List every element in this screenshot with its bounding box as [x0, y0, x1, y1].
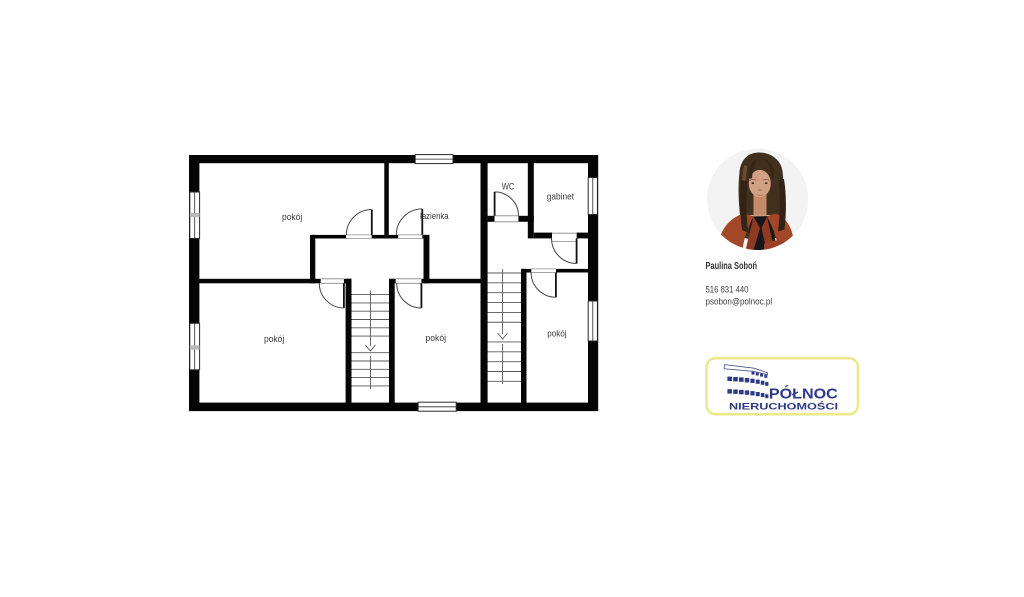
svg-text:gabinet: gabinet: [547, 192, 575, 202]
svg-text:Paulina Soboń: Paulina Soboń: [706, 261, 758, 272]
svg-text:psobon@polnoc.pl: psobon@polnoc.pl: [706, 297, 773, 307]
svg-text:NIERUCHOMOŚCI: NIERUCHOMOŚCI: [729, 400, 838, 412]
svg-text:łazienka: łazienka: [420, 211, 449, 221]
svg-text:pokój: pokój: [547, 328, 566, 338]
svg-text:WC: WC: [502, 182, 515, 192]
svg-text:pokój: pokój: [264, 334, 284, 344]
svg-text:pokój: pokój: [426, 333, 447, 343]
svg-text:pokój: pokój: [282, 212, 302, 222]
svg-text:PÓŁNOC: PÓŁNOC: [769, 384, 838, 402]
svg-text:516 831 440: 516 831 440: [706, 285, 749, 295]
